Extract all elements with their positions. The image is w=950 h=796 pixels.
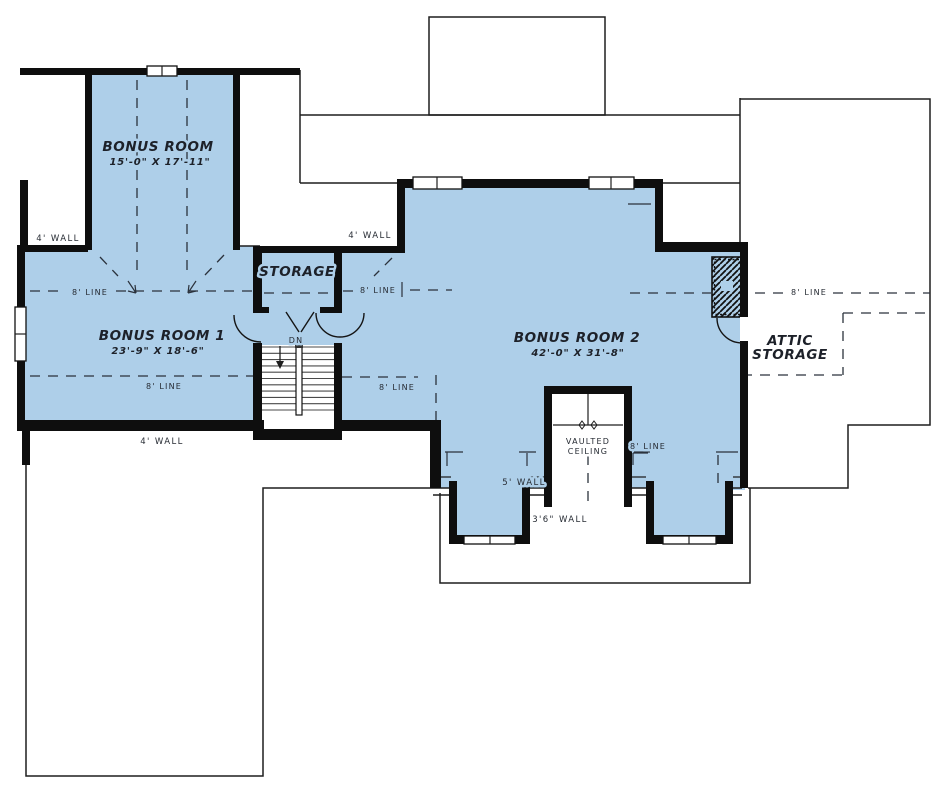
- floor-plan-drawing: BONUS ROOM 15'-0" X 17'-11" BONUS ROOM 1…: [0, 0, 950, 796]
- label-8-line: 8' LINE: [146, 382, 182, 391]
- window: [413, 177, 462, 189]
- wall-segment: [17, 361, 25, 426]
- roof-line: [26, 465, 433, 776]
- right-dormer-fill: [648, 478, 733, 543]
- wall-segment: [20, 68, 147, 75]
- wall-segment: [17, 420, 264, 431]
- wall-segment: [646, 481, 654, 539]
- label-4-wall: 4' WALL: [348, 231, 391, 241]
- label-bonus-room-1-dims: 23'-9" X 18'-6": [111, 346, 204, 357]
- window: [15, 307, 26, 361]
- wall-segment: [20, 180, 28, 250]
- label-bonus-room-2: BONUS ROOM 2: [514, 330, 641, 346]
- window: [147, 66, 177, 76]
- wall-segment: [522, 481, 530, 539]
- wall-segment: [253, 307, 269, 313]
- label-dn: DN: [289, 336, 304, 345]
- wall-segment: [334, 246, 342, 313]
- label-storage: STORAGE: [259, 264, 335, 280]
- wall-segment: [544, 386, 632, 394]
- wall-segment: [397, 179, 415, 188]
- label-attic-storage-2: STORAGE: [752, 347, 828, 363]
- wall-segment: [253, 429, 342, 440]
- label-bonus-room: BONUS ROOM: [102, 139, 213, 155]
- wall-segment: [85, 73, 92, 250]
- wall-segment: [655, 182, 663, 246]
- wall-segment: [397, 182, 405, 253]
- wall-segment: [17, 246, 25, 309]
- label-8-line: 8' LINE: [72, 288, 108, 297]
- wall-segment: [740, 250, 748, 317]
- wall-segment: [544, 386, 552, 507]
- label-bonus-room-2-dims: 42'-0" X 31'-8": [530, 348, 624, 359]
- window: [589, 177, 634, 189]
- label-8-line: 8' LINE: [379, 383, 415, 392]
- wall-segment: [655, 242, 748, 252]
- wall-segment: [430, 420, 441, 488]
- door-opening: [740, 317, 748, 341]
- wall-segment: [334, 420, 440, 431]
- chimney-flue: [721, 281, 733, 291]
- stairs: [262, 343, 334, 415]
- wall-segment: [334, 246, 404, 253]
- label-5-wall: 5' WALL: [502, 478, 545, 488]
- wall-segment: [725, 481, 733, 539]
- label-bonus-room-dims: 15'-0" X 17'-11": [109, 157, 210, 168]
- wall-segment: [233, 73, 240, 250]
- label-bonus-room-1: BONUS ROOM 1: [99, 328, 226, 344]
- label-8-line: 8' LINE: [630, 442, 666, 451]
- floor-plan-page: BONUS ROOM 15'-0" X 17'-11" BONUS ROOM 1…: [0, 0, 950, 796]
- wall-3-6-line: [433, 488, 451, 495]
- label-4-wall: 4' WALL: [140, 437, 183, 447]
- wall-segment: [253, 246, 342, 253]
- stair-stringer: [296, 345, 302, 415]
- window: [663, 536, 716, 544]
- wall-segment: [320, 307, 342, 313]
- wall-3-6-line: [528, 488, 546, 495]
- label-4-wall: 4' WALL: [36, 234, 79, 244]
- label-vaulted-1: VAULTED: [566, 437, 610, 446]
- wall-segment: [253, 343, 262, 440]
- wall-segment: [449, 481, 457, 539]
- wall-3-6-line: [630, 488, 648, 495]
- label-8-line: 8' LINE: [360, 286, 396, 295]
- label-3-6-wall: 3'6" WALL: [532, 515, 588, 525]
- wall-segment: [740, 341, 748, 488]
- label-vaulted-2: CEILING: [568, 447, 608, 456]
- wall-segment: [462, 179, 589, 188]
- roof-box-top: [429, 17, 605, 115]
- wall-segment: [17, 245, 88, 252]
- window: [464, 536, 515, 544]
- label-8-line: 8' LINE: [791, 288, 827, 297]
- wall-segment: [22, 431, 30, 465]
